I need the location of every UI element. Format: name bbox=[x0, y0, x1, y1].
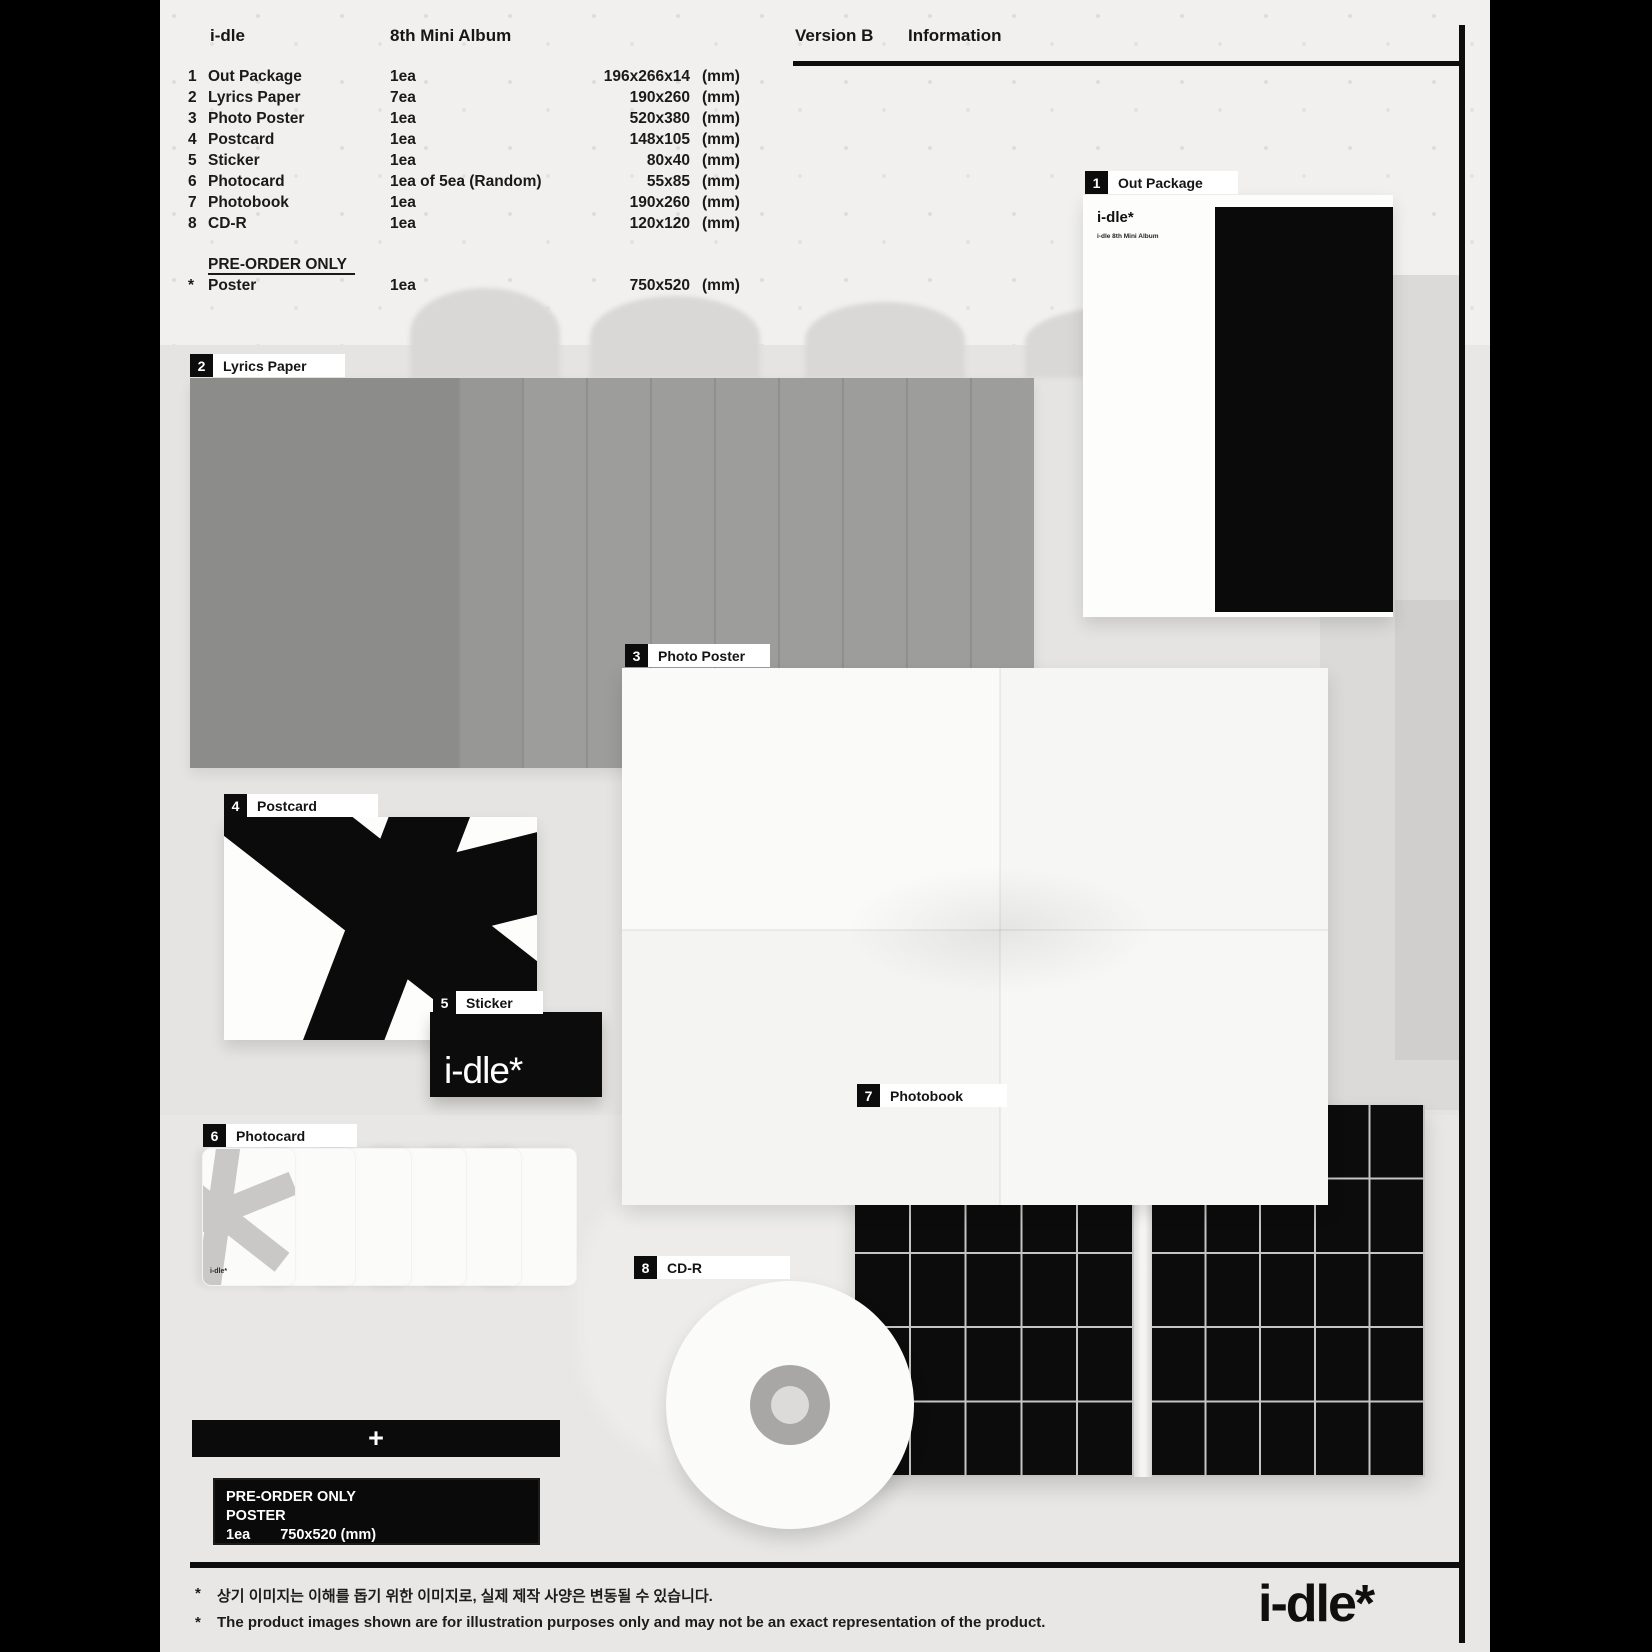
spec-row-number: 7 bbox=[188, 194, 197, 212]
header-rule bbox=[793, 61, 1464, 66]
spec-row-quantity: 1ea bbox=[390, 110, 416, 128]
lyrics-sheet bbox=[522, 378, 586, 768]
spec-row-unit: (mm) bbox=[702, 152, 740, 170]
spec-row: 6 Photocard 1ea of 5ea (Random) 55x85 (m… bbox=[188, 173, 808, 194]
poster-fold-shading bbox=[622, 668, 1328, 1205]
section-label-out-package: 1 Out Package bbox=[1085, 171, 1238, 194]
spec-row: 1 Out Package 1ea 196x266x14 (mm) bbox=[188, 68, 808, 89]
spec-row-number: 5 bbox=[188, 152, 197, 170]
spec-row: 8 CD-R 1ea 120x120 (mm) bbox=[188, 215, 808, 236]
spec-row-unit: (mm) bbox=[702, 277, 740, 295]
section-label-photocard: 6 Photocard bbox=[203, 1124, 357, 1147]
spec-row-unit: (mm) bbox=[702, 131, 740, 149]
preorder-box-spec: 1ea750x520 (mm) bbox=[226, 1526, 538, 1545]
spec-row-name: Sticker bbox=[208, 152, 260, 170]
spec-row-name: Postcard bbox=[208, 131, 274, 149]
lyrics-sheet bbox=[458, 378, 522, 768]
spec-row-unit: (mm) bbox=[702, 68, 740, 86]
spec-row-number: 3 bbox=[188, 110, 197, 128]
section-number-badge: 8 bbox=[634, 1256, 657, 1279]
spec-row-number: * bbox=[188, 277, 194, 295]
spec-row-unit: (mm) bbox=[702, 89, 740, 107]
spec-row-unit: (mm) bbox=[702, 110, 740, 128]
preorder-poster-box: PRE-ORDER ONLY POSTER 1ea750x520 (mm) bbox=[213, 1478, 540, 1545]
spec-row-size: 190x260 bbox=[518, 194, 690, 212]
sticker-logo-text: i-dle* bbox=[430, 1052, 522, 1097]
spec-row-size: 520x380 bbox=[518, 110, 690, 128]
out-package-subtitle: i-dle 8th Mini Album bbox=[1097, 233, 1159, 240]
photocard-image: i-dle* bbox=[202, 1148, 296, 1286]
spec-row-size: 120x120 bbox=[518, 215, 690, 233]
spec-row-size: 196x266x14 bbox=[518, 68, 690, 86]
section-number-badge: 3 bbox=[625, 644, 648, 667]
section-label-photo-poster: 3 Photo Poster bbox=[625, 644, 770, 667]
preorder-box-qty: 1ea bbox=[226, 1527, 250, 1543]
spec-row: 7 Photobook 1ea 190x260 (mm) bbox=[188, 194, 808, 215]
brand-logo: i-dle* bbox=[1258, 1578, 1373, 1630]
preorder-box-size: 750x520 (mm) bbox=[280, 1527, 376, 1543]
spec-row-name: Lyrics Paper bbox=[208, 89, 300, 107]
spec-row: 2 Lyrics Paper 7ea 190x260 (mm) bbox=[188, 89, 808, 110]
section-label-sticker: 5 Sticker bbox=[433, 991, 543, 1014]
spec-row-name: Out Package bbox=[208, 68, 302, 86]
background-blob bbox=[805, 302, 965, 378]
spec-table: 1 Out Package 1ea 196x266x14 (mm) 2 Lyri… bbox=[188, 68, 808, 298]
spec-row-name: Photocard bbox=[208, 173, 285, 191]
asterisk-logo-graphic bbox=[203, 1149, 295, 1285]
background-blob bbox=[590, 296, 760, 378]
spec-row-quantity: 7ea bbox=[390, 89, 416, 107]
right-frame-rule bbox=[1459, 25, 1465, 1643]
spec-row-quantity: 1ea bbox=[390, 277, 416, 295]
spec-row-quantity: 1ea bbox=[390, 68, 416, 86]
sticker-image: i-dle* bbox=[430, 1012, 602, 1097]
spec-row-unit: (mm) bbox=[702, 194, 740, 212]
spec-row-quantity: 1ea bbox=[390, 131, 416, 149]
out-package-cover-panel bbox=[1215, 207, 1393, 612]
spec-row-number: 2 bbox=[188, 89, 197, 107]
lyrics-sheet bbox=[190, 378, 458, 768]
spec-row-number: 4 bbox=[188, 131, 197, 149]
background-blob bbox=[410, 288, 560, 378]
spec-row-name: Photo Poster bbox=[208, 110, 304, 128]
section-number-badge: 7 bbox=[857, 1084, 880, 1107]
spec-row-unit: (mm) bbox=[702, 215, 740, 233]
section-number-badge: 5 bbox=[433, 991, 456, 1014]
cd-center-hole bbox=[771, 1386, 809, 1424]
section-label-lyrics-paper: 2 Lyrics Paper bbox=[190, 354, 345, 377]
spec-row-size: 55x85 bbox=[518, 173, 690, 191]
photocard-logo-text: i-dle* bbox=[210, 1268, 227, 1275]
footer-rule bbox=[190, 1562, 1465, 1568]
section-number-badge: 6 bbox=[203, 1124, 226, 1147]
information-label: Information bbox=[908, 26, 1002, 46]
out-package-image: i-dle* i-dle 8th Mini Album bbox=[1083, 195, 1393, 617]
section-label-photobook: 7 Photobook bbox=[857, 1084, 1007, 1107]
brand-title: i-dle bbox=[210, 26, 245, 46]
spec-row-number: 1 bbox=[188, 68, 197, 86]
background-blob bbox=[1395, 600, 1462, 1060]
section-label-cd-r: 8 CD-R bbox=[634, 1256, 790, 1279]
spec-row-quantity: 1ea bbox=[390, 194, 416, 212]
asterisk-mark: * bbox=[195, 1585, 201, 1602]
cd-center-ring bbox=[750, 1365, 830, 1445]
section-number-badge: 2 bbox=[190, 354, 213, 377]
preorder-box-item: POSTER bbox=[226, 1507, 538, 1526]
plus-separator-bar: + bbox=[192, 1420, 560, 1457]
spec-row: 4 Postcard 1ea 148x105 (mm) bbox=[188, 131, 808, 152]
section-number-badge: 1 bbox=[1085, 171, 1108, 194]
spec-row-unit: (mm) bbox=[702, 173, 740, 191]
spec-row-size: 148x105 bbox=[518, 131, 690, 149]
spec-row-size: 190x260 bbox=[518, 89, 690, 107]
spec-row-name: Photobook bbox=[208, 194, 289, 212]
info-sheet-page: i-dle 8th Mini Album Version B Informati… bbox=[160, 0, 1490, 1652]
out-package-logo: i-dle* bbox=[1097, 209, 1134, 226]
spec-row-name: Poster bbox=[208, 277, 256, 295]
preorder-box-title: PRE-ORDER ONLY bbox=[226, 1488, 538, 1507]
section-number-badge: 4 bbox=[224, 794, 247, 817]
spec-row-name: CD-R bbox=[208, 215, 247, 233]
spec-row-quantity: 1ea bbox=[390, 152, 416, 170]
album-title: 8th Mini Album bbox=[390, 26, 511, 46]
cd-disc-image bbox=[666, 1281, 914, 1529]
section-label-postcard: 4 Postcard bbox=[224, 794, 378, 817]
spec-row-number: 8 bbox=[188, 215, 197, 233]
spec-row: 5 Sticker 1ea 80x40 (mm) bbox=[188, 152, 808, 173]
spec-row: 3 Photo Poster 1ea 520x380 (mm) bbox=[188, 110, 808, 131]
plus-icon: + bbox=[368, 1423, 384, 1454]
spec-row-preorder-poster: * Poster 1ea 750x520 (mm) bbox=[188, 277, 808, 298]
spec-row-quantity: 1ea bbox=[390, 215, 416, 233]
asterisk-mark: * bbox=[195, 1614, 201, 1631]
photo-poster-image bbox=[622, 668, 1328, 1205]
preorder-heading: PRE-ORDER ONLY bbox=[188, 256, 808, 277]
spec-row-size: 750x520 bbox=[518, 277, 690, 295]
version-label: Version B bbox=[795, 26, 873, 46]
spec-row-size: 80x40 bbox=[518, 152, 690, 170]
spec-row-number: 6 bbox=[188, 173, 197, 191]
